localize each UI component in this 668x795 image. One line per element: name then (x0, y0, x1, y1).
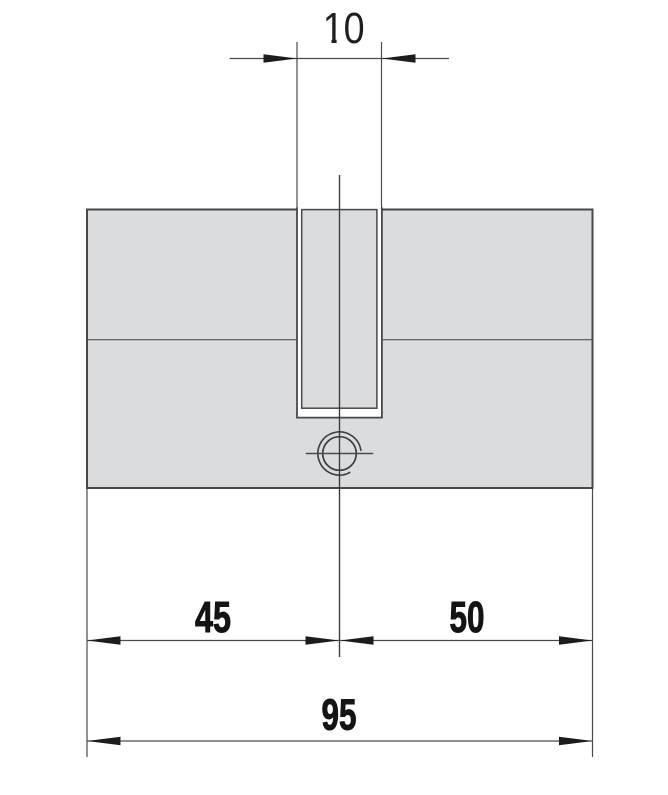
svg-text:45: 45 (195, 593, 231, 642)
svg-text:10: 10 (323, 4, 365, 53)
svg-text:50: 50 (450, 593, 485, 642)
svg-text:95: 95 (322, 690, 357, 739)
